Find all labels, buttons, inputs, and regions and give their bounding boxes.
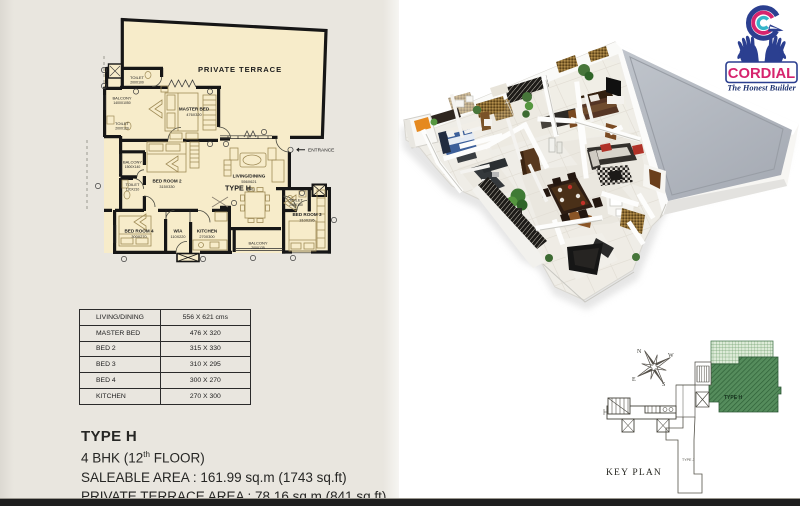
svg-text:120X210: 120X210: [126, 188, 140, 192]
svg-text:ENTRANCE: ENTRANCE: [308, 148, 334, 154]
svg-text:110X220: 110X220: [171, 235, 186, 239]
svg-text:TYPE H: TYPE H: [724, 395, 742, 401]
svg-text:E: E: [632, 377, 636, 383]
svg-text:W/A: W/A: [174, 229, 184, 234]
svg-text:BALCONY: BALCONY: [248, 241, 267, 246]
svg-text:N: N: [637, 349, 642, 355]
svg-text:1500X140: 1500X140: [125, 165, 141, 169]
svg-text:1400X1050: 1400X1050: [113, 101, 130, 105]
svg-text:BALCONY: BALCONY: [112, 96, 131, 101]
svg-text:BED ROOM 2: BED ROOM 2: [152, 179, 182, 184]
svg-text:The Honest Builder: The Honest Builder: [727, 84, 796, 93]
svg-text:200X150: 200X150: [289, 203, 303, 207]
svg-text:BALCONY: BALCONY: [123, 160, 142, 165]
svg-text:200X135: 200X135: [251, 246, 265, 250]
svg-text:TOILET: TOILET: [115, 121, 129, 126]
svg-text:270X300: 270X300: [199, 235, 214, 239]
svg-text:TYPE J: TYPE J: [682, 458, 694, 462]
svg-text:CORDIAL: CORDIAL: [728, 66, 795, 82]
svg-text:(841): (841): [247, 188, 254, 192]
svg-text:200X100: 200X100: [130, 81, 144, 85]
svg-text:KITCHEN: KITCHEN: [197, 229, 218, 234]
svg-text:TOILET: TOILET: [130, 75, 144, 80]
svg-text:315X330: 315X330: [159, 185, 174, 189]
svg-text:PRIVATE TERRACE: PRIVATE TERRACE: [198, 65, 282, 74]
svg-text:200X120: 200X120: [115, 127, 129, 131]
svg-text:TOILET: TOILET: [289, 198, 303, 203]
svg-text:LIVING/DINING: LIVING/DINING: [233, 174, 266, 179]
svg-text:MASTER BED: MASTER BED: [179, 107, 210, 112]
svg-text:476X320: 476X320: [186, 113, 201, 117]
svg-text:BED ROOM 3: BED ROOM 3: [292, 212, 322, 217]
svg-text:S: S: [662, 382, 665, 388]
svg-text:TOILET: TOILET: [126, 182, 140, 187]
svg-text:300X270: 300X270: [131, 235, 146, 239]
svg-text:W: W: [668, 353, 674, 359]
svg-text:BED ROOM 4: BED ROOM 4: [124, 229, 154, 234]
svg-text:310X295: 310X295: [299, 218, 314, 222]
svg-text:KEY PLAN: KEY PLAN: [606, 468, 662, 478]
